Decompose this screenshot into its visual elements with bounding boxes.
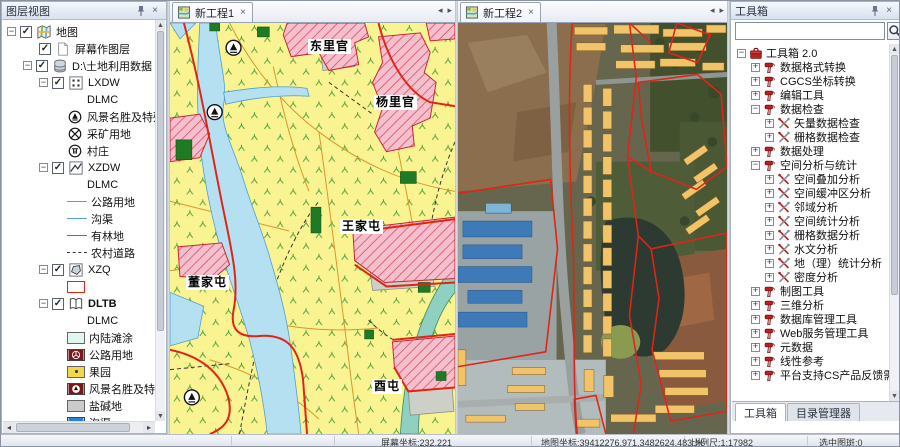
layer-panel: 图层视图 × 地图 屏幕作图层 D:\土地利用数据 bbox=[1, 1, 167, 434]
tool-row[interactable]: 空间缓冲区分析 bbox=[735, 186, 889, 200]
tool-row[interactable]: 地（理）统计分析 bbox=[735, 256, 889, 270]
tool-row[interactable]: 元数据 bbox=[735, 340, 889, 354]
scroll-up-icon[interactable]: ▲ bbox=[890, 44, 899, 54]
tool-group-icon bbox=[763, 355, 777, 368]
scenic-area-swatch bbox=[67, 383, 85, 395]
expand-icon[interactable] bbox=[751, 63, 760, 72]
map-label: 王家屯 bbox=[340, 219, 383, 234]
toolbox-search-row bbox=[735, 21, 889, 41]
tool-row[interactable]: 矢量数据检查 bbox=[735, 116, 889, 130]
expand-icon[interactable] bbox=[765, 217, 774, 226]
tool-subgroup-icon bbox=[777, 257, 791, 270]
map1-tabbar: 新工程1 × ◂ ▸ bbox=[170, 1, 455, 23]
expand-icon[interactable] bbox=[751, 343, 760, 352]
scroll-left-icon[interactable]: ◂ bbox=[3, 422, 15, 433]
expand-icon[interactable] bbox=[765, 245, 774, 254]
expand-icon[interactable] bbox=[765, 203, 774, 212]
tool-subgroup-icon bbox=[777, 229, 791, 242]
tool-group-icon bbox=[763, 103, 777, 116]
mudflat-swatch bbox=[67, 332, 85, 344]
collapse-icon[interactable] bbox=[39, 299, 48, 308]
scenic-point-icon bbox=[67, 110, 83, 124]
map-label: 东里官 bbox=[308, 39, 351, 54]
legend-row: 风景名胜及特殊用地 bbox=[3, 380, 155, 397]
highway-swatch bbox=[67, 349, 85, 361]
search-input[interactable] bbox=[735, 22, 885, 40]
collapse-icon[interactable] bbox=[7, 27, 16, 36]
expand-icon[interactable] bbox=[751, 371, 760, 380]
layer-label[interactable]: XZQ bbox=[88, 264, 111, 276]
scroll-right-icon[interactable]: ▸ bbox=[143, 422, 155, 433]
collapse-icon[interactable] bbox=[751, 161, 760, 170]
tab-catalog-manager[interactable]: 目录管理器 bbox=[787, 403, 860, 421]
checkbox[interactable] bbox=[20, 26, 32, 38]
tool-subgroup-icon bbox=[777, 243, 791, 256]
layer-panel-title: 图层视图 bbox=[6, 3, 134, 19]
map-label: 酉屯 bbox=[372, 379, 402, 394]
map1-canvas[interactable]: 东里官 杨里官 王家屯 董家屯 酉屯 bbox=[170, 23, 455, 434]
saline-swatch bbox=[67, 400, 85, 412]
scale-readout: 比例尺:1:17982 bbox=[691, 436, 753, 447]
legend-label: 沟渠 bbox=[91, 211, 113, 227]
checkbox[interactable] bbox=[36, 60, 48, 72]
tool-row[interactable]: 栅格数据检查 bbox=[735, 130, 889, 144]
expand-icon[interactable] bbox=[751, 357, 760, 366]
tab-scroll-right-icon[interactable]: ▸ bbox=[719, 5, 724, 16]
layer-label[interactable]: D:\土地利用数据 bbox=[72, 58, 152, 74]
tool-subgroup-icon bbox=[777, 187, 791, 200]
layer-tree: 地图 屏幕作图层 D:\土地利用数据 LXDW DLMC bbox=[3, 20, 155, 421]
legend-label: 风景名胜及特殊用地 bbox=[87, 109, 155, 125]
map-coordinate-readout: 地图坐标:39412276.971,3482624.483 米 bbox=[541, 436, 704, 447]
legend-label: 盐碱地 bbox=[89, 398, 122, 414]
pin-icon[interactable] bbox=[134, 4, 148, 17]
expand-icon[interactable] bbox=[751, 77, 760, 86]
legend-row: 公路用地 bbox=[3, 193, 155, 210]
tool-row[interactable]: 平台支持CS产品反馈需求功能集合 bbox=[735, 368, 889, 382]
legend-label: 采矿用地 bbox=[87, 126, 131, 142]
rural-road-line-swatch bbox=[67, 252, 87, 253]
tool-group-icon bbox=[763, 145, 777, 158]
layer-tree-vertical-scrollbar[interactable]: ▲ ▼ bbox=[155, 20, 165, 421]
layer-row-dlmc[interactable]: DLMC bbox=[3, 91, 155, 108]
mining-point-icon bbox=[67, 127, 83, 141]
map2-canvas[interactable] bbox=[458, 23, 727, 434]
map-view-1: 新工程1 × ◂ ▸ bbox=[170, 1, 455, 434]
map-thumbnail-icon bbox=[465, 6, 479, 19]
legend-row: 有林地 bbox=[3, 227, 155, 244]
toolbox-icon bbox=[749, 47, 763, 60]
tool-row[interactable]: 三维分析 bbox=[735, 298, 889, 312]
layer-row-xzq[interactable]: XZQ bbox=[3, 261, 155, 278]
toolbox-tree: 工具箱 2.0 数据格式转换 CGCS坐标转换 编辑工具 数据检查 bbox=[732, 44, 889, 401]
legend-row: 公路用地 bbox=[3, 346, 155, 363]
tool-group-icon bbox=[763, 299, 777, 312]
forest-line-swatch bbox=[67, 235, 87, 236]
tool-row[interactable]: 空间统计分析 bbox=[735, 214, 889, 228]
layer-row-dltb[interactable]: DLTB bbox=[3, 295, 155, 312]
tool-group-icon bbox=[763, 75, 777, 88]
tool-group-icon bbox=[763, 313, 777, 326]
layer-row-map[interactable]: 地图 bbox=[3, 23, 155, 40]
search-button[interactable] bbox=[887, 22, 900, 40]
datasource-icon bbox=[52, 59, 68, 73]
legend-row: 村庄 bbox=[3, 142, 155, 159]
expand-icon[interactable] bbox=[751, 91, 760, 100]
layer-panel-titlebar: 图层视图 × bbox=[2, 2, 166, 20]
tool-row[interactable]: 空间分析与统计 bbox=[735, 158, 889, 172]
map-label: 董家屯 bbox=[186, 275, 229, 290]
layer-label[interactable]: LXDW bbox=[88, 77, 120, 89]
legend-label: 风景名胜及特殊用地 bbox=[89, 381, 155, 397]
tab-scroll-arrows: ◂ ▸ bbox=[710, 5, 724, 16]
tool-group-icon bbox=[763, 369, 777, 382]
tool-group-icon bbox=[763, 327, 777, 340]
tool-row[interactable]: CGCS坐标转换 bbox=[735, 74, 889, 88]
toolbox-panel: 工具箱 × 工具箱 2.0 数据格式转换 CG bbox=[730, 1, 900, 434]
legend-label: 果园 bbox=[89, 364, 111, 380]
tool-row[interactable]: 密度分析 bbox=[735, 270, 889, 284]
layer-label[interactable]: XZDW bbox=[88, 162, 120, 174]
legend-label: 农村道路 bbox=[91, 245, 135, 261]
tool-label[interactable]: 平台支持CS产品反馈需求功能集合 bbox=[780, 367, 889, 383]
checkbox[interactable] bbox=[52, 264, 64, 276]
page-icon bbox=[55, 42, 71, 56]
tool-row[interactable]: 线性参考 bbox=[735, 354, 889, 368]
legend-label: 公路用地 bbox=[89, 347, 133, 363]
layer-row-dlmc[interactable]: DLMC bbox=[3, 176, 155, 193]
collapse-icon[interactable] bbox=[23, 61, 32, 70]
tool-row[interactable]: Web服务管理工具 bbox=[735, 326, 889, 340]
tab-label[interactable]: 新工程2 bbox=[483, 5, 522, 21]
tool-row[interactable]: 空间叠加分析 bbox=[735, 172, 889, 186]
layer-row-xzdw[interactable]: XZDW bbox=[3, 159, 155, 176]
close-icon[interactable]: × bbox=[882, 4, 896, 17]
collapse-icon[interactable] bbox=[39, 78, 48, 87]
toolbox-title: 工具箱 bbox=[735, 3, 868, 19]
map-view-2: 新工程2 × ◂ ▸ bbox=[458, 1, 727, 434]
tool-row[interactable]: 数据格式转换 bbox=[735, 60, 889, 74]
expand-icon[interactable] bbox=[765, 231, 774, 240]
tool-subgroup-icon bbox=[777, 117, 791, 130]
tab-project1[interactable]: 新工程1 × bbox=[172, 2, 253, 22]
layer-label[interactable]: 地图 bbox=[56, 24, 78, 40]
tool-row[interactable]: 邻域分析 bbox=[735, 200, 889, 214]
scroll-down-icon[interactable]: ▼ bbox=[156, 411, 165, 421]
scroll-thumb[interactable] bbox=[16, 423, 130, 432]
map-thumbnail-icon bbox=[177, 6, 191, 19]
expand-icon[interactable] bbox=[751, 315, 760, 324]
screen-coordinate-readout: 屏幕坐标:232,221 bbox=[381, 436, 452, 447]
map2-tabbar: 新工程2 × ◂ ▸ bbox=[458, 1, 727, 23]
polygon-dataset-icon bbox=[68, 263, 84, 277]
legend-row: 沟渠 bbox=[3, 414, 155, 421]
tool-subgroup-icon bbox=[777, 271, 791, 284]
tab-close-icon[interactable]: × bbox=[528, 7, 534, 18]
tool-group-icon bbox=[763, 341, 777, 354]
region-dataset-icon bbox=[68, 297, 84, 311]
collapse-icon[interactable] bbox=[737, 49, 746, 58]
tool-row[interactable]: 数据检查 bbox=[735, 102, 889, 116]
tool-subgroup-icon bbox=[777, 173, 791, 186]
expand-icon[interactable] bbox=[765, 273, 774, 282]
tool-subgroup-icon bbox=[777, 131, 791, 144]
expand-icon[interactable] bbox=[765, 259, 774, 268]
legend-label: 内陆滩涂 bbox=[89, 330, 133, 346]
status-bar: 屏幕坐标:232,221 地图坐标:39412276.971,3482624.4… bbox=[1, 434, 899, 446]
tab-label[interactable]: 新工程1 bbox=[195, 5, 234, 21]
map-label: 杨里官 bbox=[374, 95, 417, 110]
checkbox[interactable] bbox=[39, 43, 51, 55]
layer-row-datasource[interactable]: D:\土地利用数据 bbox=[3, 57, 155, 74]
village-point-icon bbox=[67, 144, 83, 158]
tool-group-icon bbox=[763, 285, 777, 298]
expand-icon[interactable] bbox=[751, 287, 760, 296]
tool-group-icon bbox=[763, 61, 777, 74]
expand-icon[interactable] bbox=[751, 301, 760, 310]
scroll-down-icon[interactable]: ▼ bbox=[890, 391, 899, 401]
legend-row: 农村道路 bbox=[3, 244, 155, 261]
tool-row[interactable]: 水文分析 bbox=[735, 242, 889, 256]
landuse-map[interactable] bbox=[170, 23, 455, 434]
ditch-line-swatch bbox=[67, 218, 87, 219]
legend-row: 盐碱地 bbox=[3, 397, 155, 414]
tab-scroll-left-icon[interactable]: ◂ bbox=[710, 5, 715, 16]
tool-subgroup-icon bbox=[777, 215, 791, 228]
expand-icon[interactable] bbox=[751, 329, 760, 338]
legend-row: 风景名胜及特殊用地 bbox=[3, 108, 155, 125]
layer-row-lxdw[interactable]: LXDW bbox=[3, 74, 155, 91]
collapse-icon[interactable] bbox=[39, 265, 48, 274]
field-label[interactable]: DLMC bbox=[87, 179, 118, 191]
expand-icon[interactable] bbox=[751, 147, 760, 156]
checkbox[interactable] bbox=[52, 162, 64, 174]
toolbox-vertical-scrollbar[interactable]: ▲ ▼ bbox=[889, 44, 899, 401]
expand-icon[interactable] bbox=[765, 133, 774, 142]
collapse-icon[interactable] bbox=[751, 105, 760, 114]
tool-row[interactable]: 制图工具 bbox=[735, 284, 889, 298]
tool-row[interactable]: 数据库管理工具 bbox=[735, 312, 889, 326]
toolbox-titlebar: 工具箱 × bbox=[731, 2, 900, 20]
tab-project2[interactable]: 新工程2 × bbox=[460, 2, 541, 22]
legend-row: 内陆滩涂 bbox=[3, 329, 155, 346]
legend-row bbox=[3, 278, 155, 295]
tool-group-icon bbox=[763, 159, 777, 172]
tool-subgroup-icon bbox=[777, 201, 791, 214]
layer-row-dlmc[interactable]: DLMC bbox=[3, 312, 155, 329]
checkbox[interactable] bbox=[52, 77, 64, 89]
tool-row[interactable]: 数据处理 bbox=[735, 144, 889, 158]
point-dataset-icon bbox=[68, 76, 84, 90]
satellite-map[interactable] bbox=[458, 23, 727, 434]
tab-scroll-left-icon[interactable]: ◂ bbox=[438, 5, 443, 16]
layer-row-screen[interactable]: 屏幕作图层 bbox=[3, 40, 155, 57]
collapse-icon[interactable] bbox=[39, 163, 48, 172]
tab-scroll-right-icon[interactable]: ▸ bbox=[447, 5, 452, 16]
scroll-up-icon[interactable]: ▲ bbox=[156, 20, 165, 30]
layer-label[interactable]: DLTB bbox=[88, 298, 117, 310]
layer-label[interactable]: 屏幕作图层 bbox=[75, 41, 130, 57]
search-icon bbox=[888, 24, 900, 38]
tool-group-icon bbox=[763, 89, 777, 102]
field-label[interactable]: DLMC bbox=[87, 315, 118, 327]
close-icon[interactable]: × bbox=[148, 4, 162, 17]
legend-label: 村庄 bbox=[87, 143, 109, 159]
expand-icon[interactable] bbox=[765, 119, 774, 128]
tab-scroll-arrows: ◂ ▸ bbox=[438, 5, 452, 16]
pin-icon[interactable] bbox=[868, 4, 882, 17]
expand-icon[interactable] bbox=[765, 175, 774, 184]
legend-label: 有林地 bbox=[91, 228, 124, 244]
tool-row-root[interactable]: 工具箱 2.0 bbox=[735, 46, 889, 60]
checkbox[interactable] bbox=[52, 298, 64, 310]
orchard-swatch bbox=[67, 366, 85, 378]
field-label[interactable]: DLMC bbox=[87, 94, 118, 106]
tab-toolbox[interactable]: 工具箱 bbox=[735, 403, 786, 421]
road-line-swatch bbox=[67, 201, 87, 202]
legend-label: 公路用地 bbox=[91, 194, 135, 210]
legend-row: 沟渠 bbox=[3, 210, 155, 227]
expand-icon[interactable] bbox=[765, 189, 774, 198]
map-icon bbox=[36, 25, 52, 39]
legend-row: 采矿用地 bbox=[3, 125, 155, 142]
scroll-thumb[interactable] bbox=[891, 55, 898, 295]
xzq-boundary-swatch bbox=[67, 281, 85, 293]
selected-parcel-count: 选中图斑:0 bbox=[819, 436, 863, 447]
legend-row: 果园 bbox=[3, 363, 155, 380]
layer-tree-horizontal-scrollbar[interactable]: ◂ ▸ bbox=[3, 421, 155, 433]
scroll-thumb[interactable] bbox=[157, 31, 164, 331]
application-window: 图层视图 × 地图 屏幕作图层 D:\土地利用数据 bbox=[0, 0, 900, 447]
tool-row[interactable]: 栅格数据分析 bbox=[735, 228, 889, 242]
tool-row[interactable]: 编辑工具 bbox=[735, 88, 889, 102]
line-dataset-icon bbox=[68, 161, 84, 175]
tab-close-icon[interactable]: × bbox=[240, 7, 246, 18]
toolbox-bottom-tabs: 工具箱 目录管理器 bbox=[732, 401, 899, 421]
